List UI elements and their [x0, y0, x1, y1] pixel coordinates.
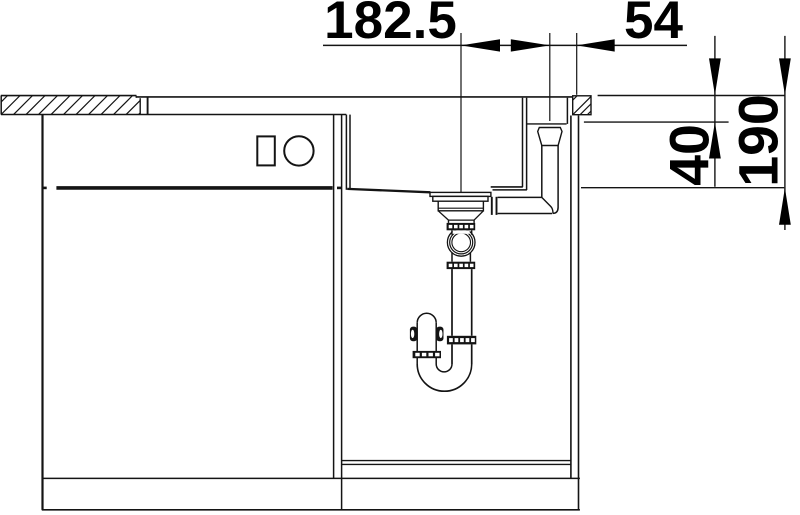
svg-text:190: 190 — [728, 94, 790, 187]
svg-text:54: 54 — [624, 0, 683, 50]
svg-text:182.5: 182.5 — [324, 0, 457, 50]
svg-text:40: 40 — [659, 124, 721, 186]
